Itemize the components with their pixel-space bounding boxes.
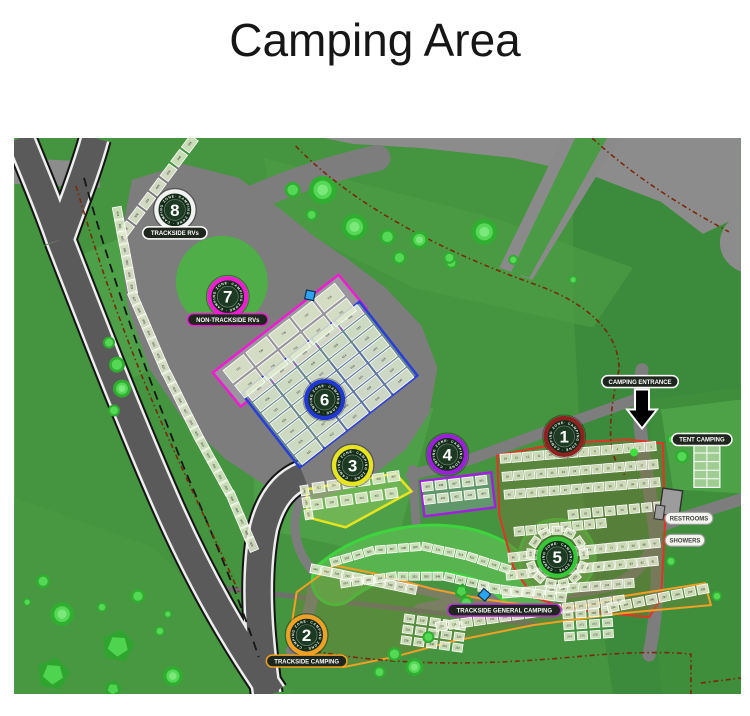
svg-text:277: 277: [606, 632, 611, 636]
entrance-tree: [630, 448, 638, 456]
svg-text:506: 506: [378, 548, 383, 552]
tree-icon: [379, 229, 395, 245]
tree-icon: [392, 251, 406, 265]
svg-text:267: 267: [578, 612, 583, 616]
zone-number: 5: [552, 548, 561, 567]
svg-text:549: 549: [436, 574, 441, 578]
zone-badge-6: · CAMPING ZONE · CAMPING ZONE6: [303, 378, 346, 421]
map-label-tent_camping: TENT CAMPING: [672, 433, 732, 445]
zone-number: 1: [559, 427, 568, 446]
camping-map-svg: 1413121110987654321292827262524232221201…: [14, 138, 741, 694]
svg-text:552: 552: [401, 574, 406, 578]
svg-text:107: 107: [571, 586, 576, 590]
map-label-trackside_camping: TRACKSIDE CAMPING: [266, 655, 347, 667]
svg-text:405: 405: [479, 478, 485, 483]
map-label-trackside_rvs: TRACKSIDE RVs: [143, 227, 207, 239]
svg-text:551: 551: [412, 574, 417, 578]
tree-icon: [108, 405, 120, 417]
svg-text:104: 104: [604, 583, 609, 587]
dumpster-marker: [305, 290, 316, 301]
svg-text:550: 550: [424, 574, 429, 578]
svg-text:408: 408: [438, 483, 444, 488]
tree-icon: [309, 176, 337, 204]
map-label-non_trackside_rvs: NON-TRACKSIDE RVs: [187, 314, 268, 326]
svg-text:270: 270: [566, 623, 571, 627]
tree-icon: [405, 658, 423, 676]
tree-icon: [23, 598, 31, 606]
map-label-trackside_general_camping: TRACKSIDE GENERAL CAMPING: [448, 604, 561, 616]
zone-number: 7: [223, 288, 232, 307]
zone-number: 6: [320, 391, 329, 410]
svg-text:406: 406: [465, 480, 471, 485]
zone-badge-4: · CAMPING ZONE · CAMPING ZONE4: [426, 433, 469, 476]
svg-text:400: 400: [427, 497, 433, 502]
svg-text:273: 273: [605, 621, 610, 625]
tree-icon: [508, 255, 518, 265]
svg-text:TENT CAMPING: TENT CAMPING: [679, 438, 725, 444]
svg-text:266: 266: [565, 612, 570, 616]
page-title: Camping Area: [0, 14, 750, 67]
tree-icon: [712, 591, 722, 601]
tree-icon: [675, 449, 689, 463]
tree-icon: [50, 602, 74, 626]
svg-text:509: 509: [413, 545, 418, 549]
svg-text:276: 276: [593, 633, 598, 637]
tree-icon: [36, 574, 50, 588]
svg-text:404: 404: [481, 491, 487, 496]
svg-text:CAMPING ENTRANCE: CAMPING ENTRANCE: [609, 380, 672, 386]
svg-text:271: 271: [579, 622, 584, 626]
tree-icon: [443, 252, 455, 264]
tree-icon: [163, 666, 183, 686]
zone-badge-3: · CAMPING ZONE · CAMPING ZONE3: [331, 444, 374, 487]
tree-icon: [471, 219, 497, 245]
svg-text:402: 402: [454, 494, 460, 499]
svg-text:TRACKSIDE CAMPING: TRACKSIDE CAMPING: [274, 659, 339, 665]
svg-text:SHOWERS: SHOWERS: [670, 538, 701, 544]
tree-icon: [164, 610, 172, 618]
svg-text:TRACKSIDE GENERAL CAMPING: TRACKSIDE GENERAL CAMPING: [457, 608, 553, 614]
zone-badge-2: · CAMPING ZONE · CAMPING ZONE2: [285, 614, 328, 657]
zone-number: 4: [443, 445, 453, 464]
tree-icon: [422, 631, 434, 643]
tree-icon: [285, 182, 301, 198]
tree-icon: [342, 214, 368, 240]
svg-text:268: 268: [591, 611, 596, 615]
tree-icon: [155, 626, 165, 636]
zone-badge-8: · CAMPING ZONE · CAMPING ZONE8: [153, 188, 196, 231]
svg-text:508: 508: [401, 546, 406, 550]
map-label-showers: SHOWERS: [665, 534, 705, 546]
zone-badge-7: · CAMPING ZONE · CAMPING ZONE7: [206, 275, 249, 318]
zone-number: 8: [170, 201, 179, 220]
svg-text:106: 106: [582, 585, 587, 589]
svg-text:275: 275: [580, 633, 585, 637]
svg-text:105: 105: [593, 584, 598, 588]
zone-number: 3: [348, 456, 357, 475]
svg-text:TRACKSIDE RVs: TRACKSIDE RVs: [151, 231, 200, 237]
map-label-camping_entrance: CAMPING ENTRANCE: [602, 376, 678, 388]
zone-number: 2: [302, 626, 311, 645]
camping-map: 1413121110987654321292827262524232221201…: [14, 138, 741, 694]
svg-text:401: 401: [440, 496, 446, 501]
zone-badge-5: · CAMPING ZONE · CAMPING ZONE5: [536, 536, 579, 579]
svg-text:272: 272: [592, 622, 597, 626]
tree-icon: [113, 380, 131, 398]
tree-icon: [387, 647, 401, 661]
zone-badge-1: · CAMPING ZONE · CAMPING ZONE1: [543, 415, 586, 458]
svg-text:102: 102: [627, 581, 632, 585]
tree-icon: [109, 357, 125, 373]
svg-text:NON-TRACKSIDE RVs: NON-TRACKSIDE RVs: [196, 318, 260, 324]
svg-text:403: 403: [467, 493, 473, 498]
svg-text:507: 507: [390, 547, 395, 551]
tree-icon: [666, 556, 676, 566]
svg-text:274: 274: [567, 634, 572, 638]
tree-icon: [374, 666, 386, 678]
tree-icon: [410, 231, 428, 249]
tent-camping-grid: [694, 444, 720, 487]
svg-text:RESTROOMS: RESTROOMS: [670, 517, 708, 523]
svg-text:407: 407: [452, 481, 458, 486]
map-label-restrooms: RESTROOMS: [665, 512, 713, 524]
tree-icon: [306, 209, 318, 221]
svg-text:103: 103: [615, 582, 620, 586]
svg-text:409: 409: [425, 484, 431, 489]
tree-icon: [97, 602, 107, 612]
tree-icon: [131, 589, 145, 603]
tree-icon: [103, 337, 115, 349]
svg-text:518: 518: [555, 528, 560, 532]
tree-icon: [569, 276, 577, 284]
